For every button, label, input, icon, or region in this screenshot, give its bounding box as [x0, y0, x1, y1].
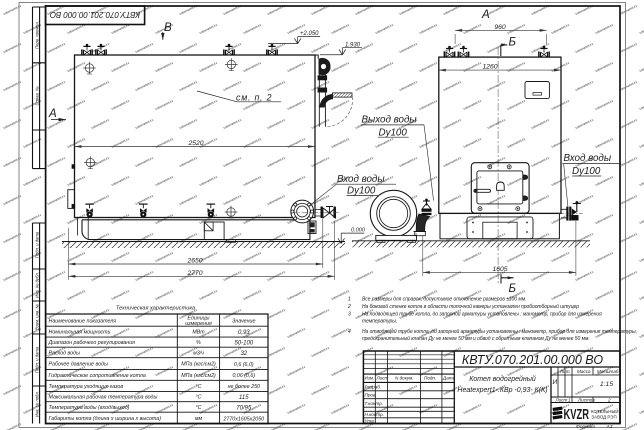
svg-text:Лист: Лист	[376, 376, 389, 381]
svg-text:Инв. № подл.: Инв. № подл.	[35, 391, 40, 417]
svg-text:Наименование показателя: Наименование показателя	[49, 319, 117, 325]
svg-text:температуры.: температуры.	[362, 319, 397, 325]
svg-text:Справ. №: Справ. №	[35, 86, 40, 105]
svg-text:4: 4	[348, 329, 351, 335]
svg-text:Т.контр.: Т.контр.	[365, 401, 384, 406]
svg-text:Рабочее давление воды: Рабочее давление воды	[49, 362, 108, 368]
svg-text:0,93: 0,93	[238, 330, 250, 336]
svg-text:Подп. и дата: Подп. и дата	[35, 346, 40, 373]
svg-text:2: 2	[347, 304, 351, 310]
svg-text:Вход воды: Вход воды	[564, 153, 612, 164]
svg-text:2: 2	[607, 398, 611, 403]
svg-text:Dy100: Dy100	[379, 127, 408, 138]
svg-text:32: 32	[240, 351, 247, 357]
svg-text:°С: °С	[196, 395, 202, 401]
svg-text:А: А	[48, 108, 57, 120]
svg-text:Масштаб: Масштаб	[597, 369, 619, 374]
svg-text:50-100: 50-100	[234, 341, 253, 347]
svg-text:2770х1605х2050: 2770х1605х2050	[222, 416, 264, 422]
svg-text:Температура уходящих газов: Температура уходящих газов	[49, 384, 124, 390]
svg-text:Утв.: Утв.	[365, 418, 375, 423]
svg-text:И: И	[553, 379, 558, 386]
svg-text:Лист: Лист	[555, 398, 568, 403]
svg-text:2650: 2650	[186, 258, 202, 265]
svg-text:Котел водогрейный: Котел водогрейный	[469, 375, 536, 383]
svg-text:1: 1	[568, 398, 571, 403]
svg-text:Dy100: Dy100	[572, 166, 601, 177]
svg-text:Диапазон рабочего регулировани: Диапазон рабочего регулирования	[48, 340, 136, 346]
svg-text:1.930: 1.930	[345, 42, 361, 48]
svg-text:Значение: Значение	[232, 319, 255, 325]
svg-text:1:15: 1:15	[600, 381, 613, 388]
svg-text:КОТЕЛЬНЫЙ: КОТЕЛЬНЫЙ	[591, 409, 619, 414]
svg-text:Инв. № дубл.: Инв. № дубл.	[35, 272, 40, 298]
svg-text:Выход воды: Выход воды	[362, 115, 418, 126]
svg-text:Лит.: Лит.	[559, 369, 571, 374]
svg-text:0.000: 0.000	[351, 228, 366, 234]
svg-text:см. п. 2: см. п. 2	[236, 93, 272, 103]
svg-text:На боковой стенке котла в обла: На боковой стенке котла в области топочн…	[362, 303, 579, 310]
svg-text:960: 960	[494, 24, 506, 31]
svg-text:МВт: МВт	[192, 330, 205, 336]
svg-text:А3: А3	[606, 424, 613, 430]
svg-text:Температура воды (вход/выход): Температура воды (вход/выход)	[49, 405, 130, 411]
svg-text:КВТУ.070.201.00.000 ВО: КВТУ.070.201.00.000 ВО	[462, 353, 603, 367]
svg-text:КВТУ.070.201.00.000 ВО: КВТУ.070.201.00.000 ВО	[50, 10, 140, 19]
svg-text:Разраб.: Разраб.	[365, 385, 382, 390]
svg-text:1605: 1605	[492, 266, 507, 273]
svg-text:1260: 1260	[482, 63, 497, 70]
svg-text:Техническая характеристика: Техническая характеристика	[116, 306, 195, 312]
svg-text:Б: Б	[509, 37, 517, 49]
svg-text:измерения: измерения	[185, 321, 212, 327]
svg-text:Максимальная рабочая температу: Максимальная рабочая температура воды	[49, 395, 158, 401]
svg-text:Масса: Масса	[577, 369, 591, 374]
svg-text:Номинальная мощность: Номинальная мощность	[49, 330, 111, 336]
svg-text:Пров.: Пров.	[365, 393, 377, 398]
svg-text:В: В	[164, 22, 172, 34]
svg-text:Вход воды: Вход воды	[337, 174, 385, 185]
svg-text:2770: 2770	[186, 270, 202, 277]
svg-text:предохранительный клапан Ду н: предохранительный клапан Ду не менее 50 …	[362, 335, 590, 342]
svg-text:МПа (кгс/см2): МПа (кгс/см2)	[181, 373, 216, 379]
svg-text:Heatexpert1-.КВр -0,93- К(К): Heatexpert1-.КВр -0,93- К(К)	[457, 387, 547, 394]
svg-text:м3/ч: м3/ч	[193, 351, 204, 357]
svg-text:°С: °С	[196, 405, 202, 411]
svg-text:N докум.: N докум.	[395, 376, 414, 381]
svg-text:Габариты котла (длина х ширина: Габариты котла (длина х ширина х высота)	[49, 416, 162, 422]
svg-text:0,06 (0,6): 0,06 (0,6)	[232, 373, 255, 379]
svg-text:°С: °С	[196, 384, 202, 390]
svg-text:На подводящей трубе котла, до: На подводящей трубе котла, до запорной а…	[362, 311, 602, 318]
svg-text:0,6 (6,0): 0,6 (6,0)	[234, 362, 254, 368]
svg-text:Листов: Листов	[577, 398, 595, 403]
svg-text:Расход воды: Расход воды	[49, 351, 80, 357]
svg-text:Все размеры для справок, допус: Все размеры для справок, допустимое откл…	[362, 297, 526, 303]
svg-text:На отводящей трубе котла ,до з: На отводящей трубе котла ,до запорной ар…	[362, 328, 637, 335]
svg-text:ЗАВОД РЭП: ЗАВОД РЭП	[592, 414, 617, 419]
svg-text:А: А	[481, 9, 490, 21]
svg-text:1: 1	[348, 297, 351, 303]
svg-text:+2.050: +2.050	[300, 31, 319, 37]
svg-text:Dy100: Dy100	[347, 186, 376, 197]
svg-text:70/95: 70/95	[236, 405, 252, 411]
svg-text:KVZR: KVZR	[564, 407, 590, 423]
svg-text:115: 115	[239, 395, 249, 401]
svg-text:МПа (кгс/см2): МПа (кгс/см2)	[181, 362, 216, 368]
svg-text:Перв. примен.: Перв. примен.	[35, 21, 40, 49]
svg-text:Б: Б	[509, 283, 517, 295]
svg-text:Подп.: Подп.	[424, 376, 436, 381]
svg-text:мм: мм	[195, 416, 203, 422]
svg-text:Изм.: Изм.	[365, 376, 375, 381]
svg-text:3: 3	[348, 312, 351, 318]
svg-text:Н.контр.: Н.контр.	[365, 412, 384, 417]
svg-text:Взам. инв. №: Взам. инв. №	[35, 304, 40, 330]
svg-text:Гидравлическое сопротивление к: Гидравлическое сопротивление котла	[49, 373, 146, 379]
svg-text:%: %	[196, 340, 201, 346]
svg-text:2520: 2520	[187, 140, 203, 147]
svg-text:Подп. и дата: Подп. и дата	[35, 231, 40, 258]
svg-text:Дата: Дата	[442, 376, 456, 381]
svg-text:не более 250: не более 250	[228, 384, 260, 390]
svg-text:Формат: Формат	[576, 424, 595, 430]
